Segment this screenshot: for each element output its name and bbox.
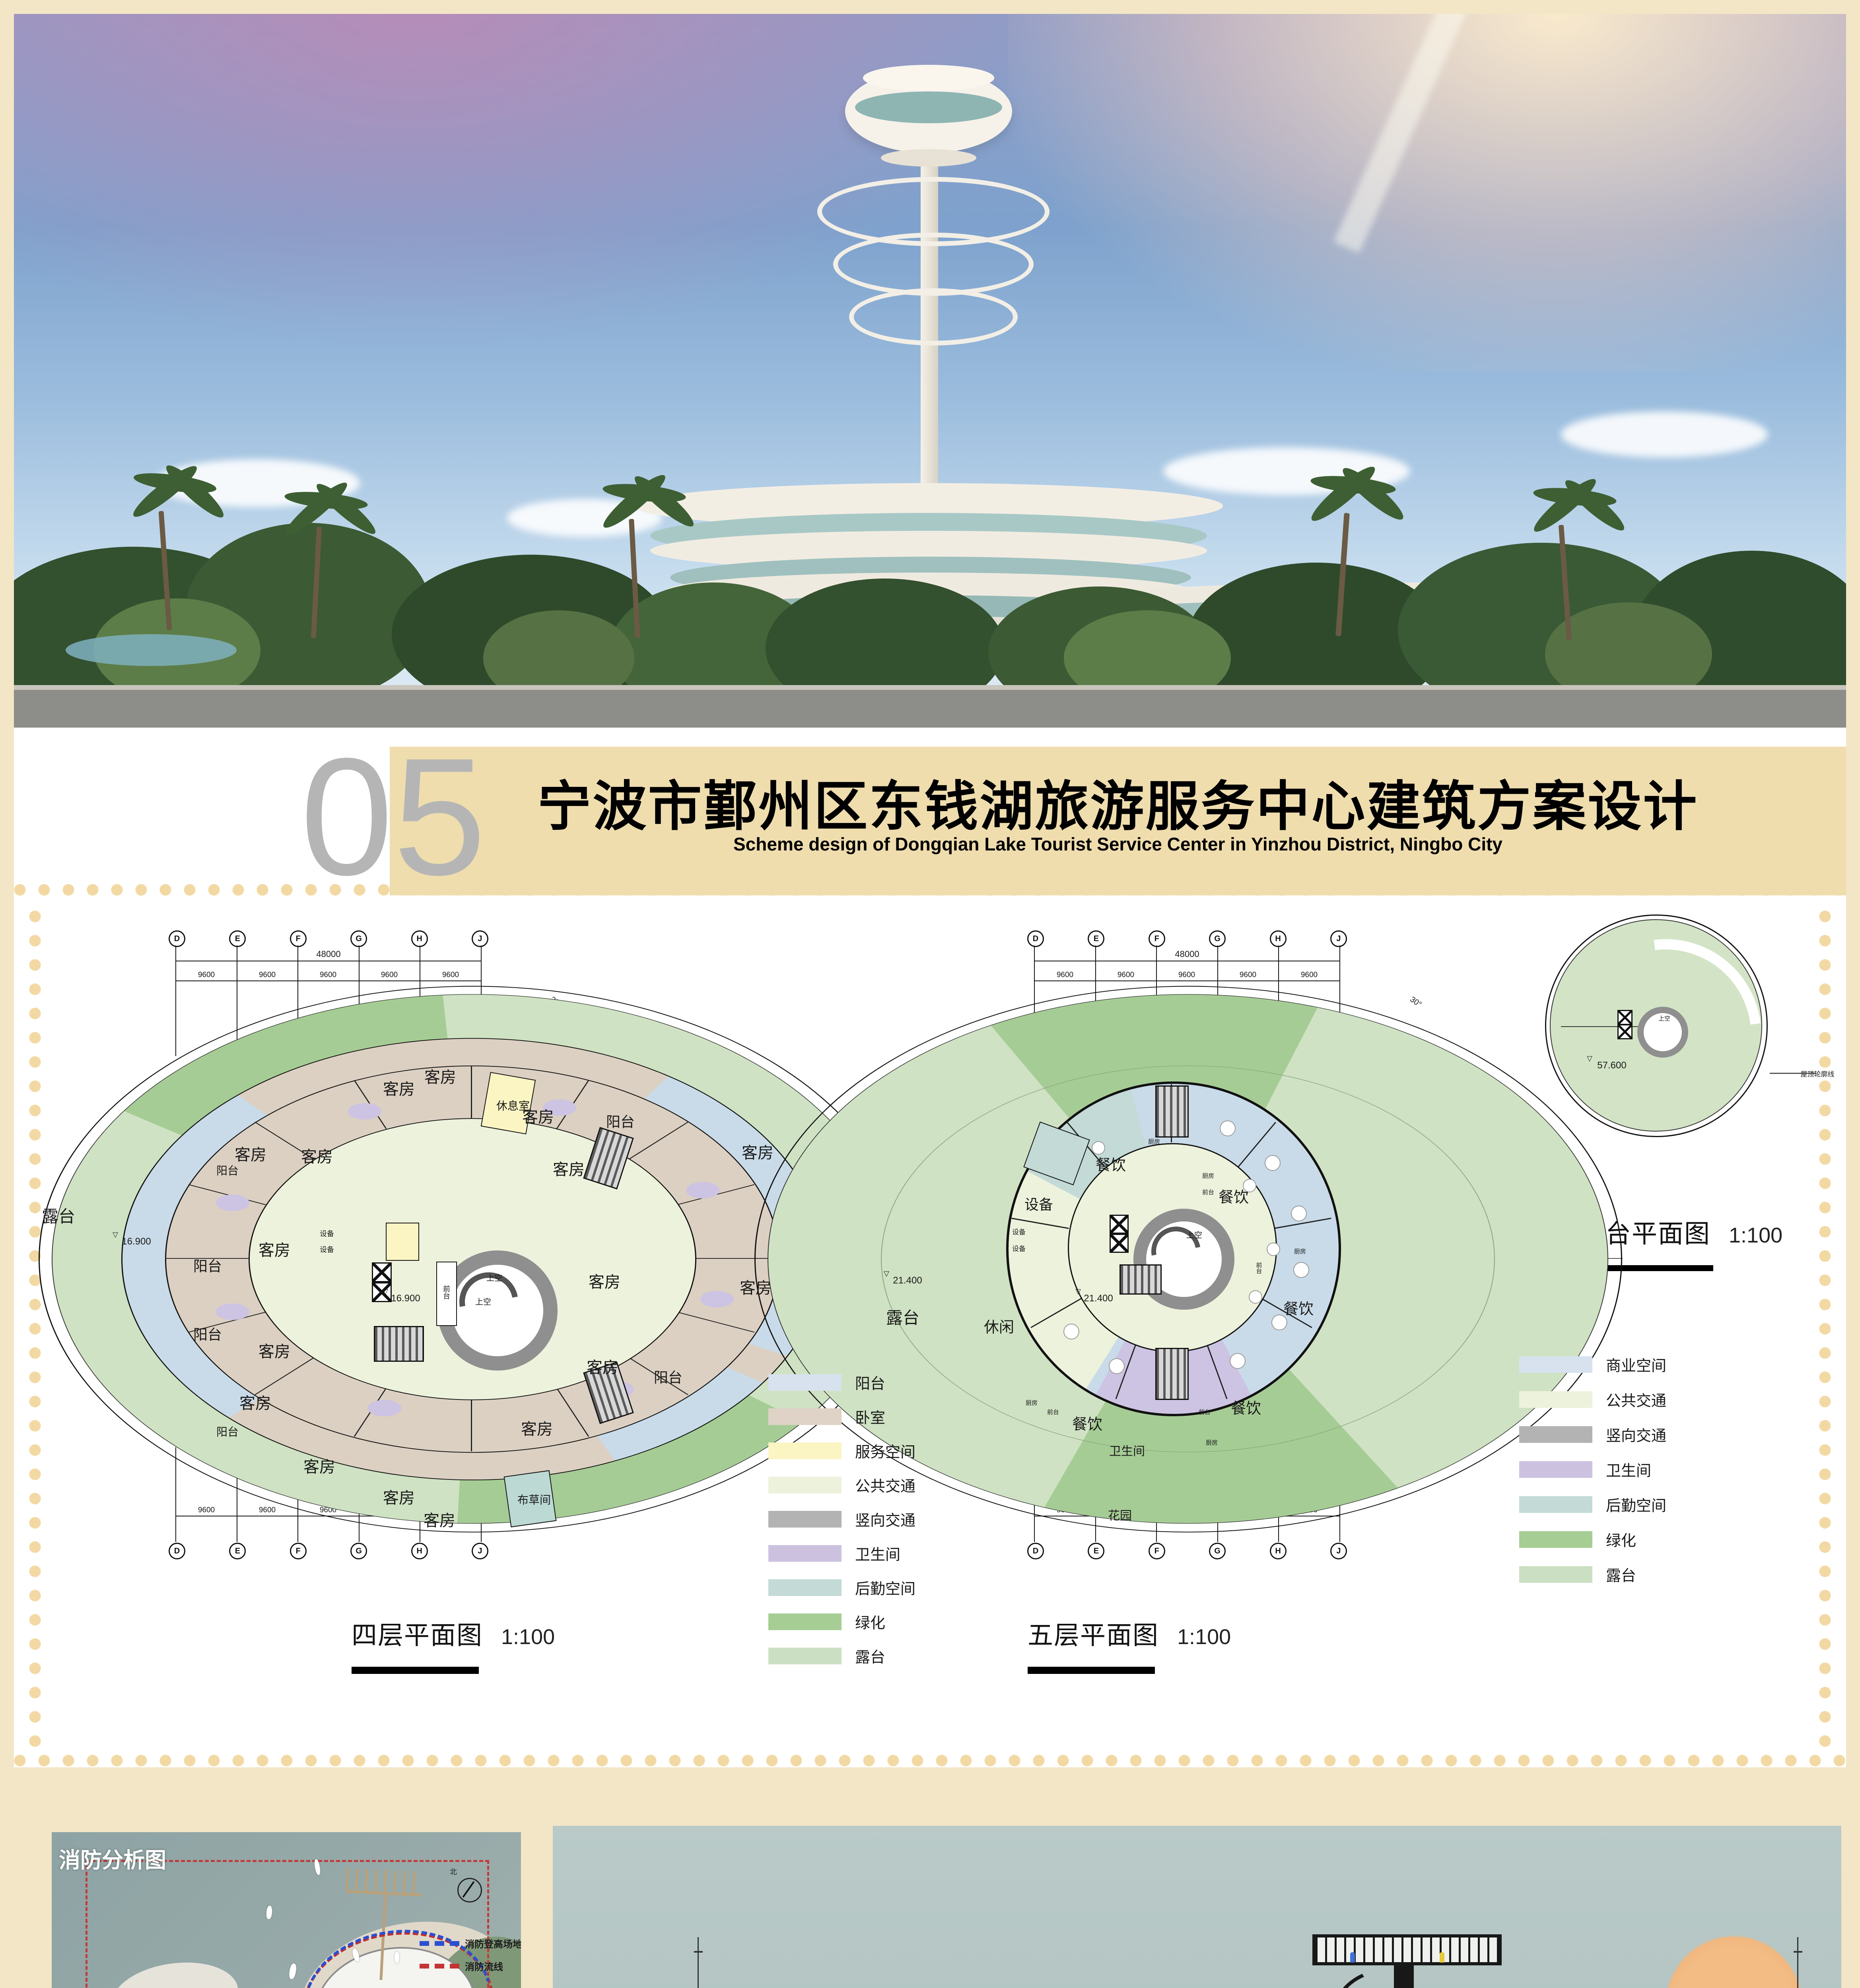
legend-label: 公共交通 <box>1606 1388 1666 1410</box>
label: 21.400 <box>1084 1294 1113 1303</box>
plan5-caption: 五层平面图 1:100 <box>1028 1615 1231 1652</box>
legend-swatch <box>1519 1496 1592 1513</box>
plan4-caption-underline <box>352 1667 479 1674</box>
plan5-caption-scale: 1:100 <box>1177 1625 1231 1649</box>
grid-axis-bubble: G <box>350 1543 367 1559</box>
label: 客房 <box>587 1360 618 1376</box>
grid-axis-bubble: E <box>1088 1543 1104 1559</box>
label: 设备 <box>1012 1229 1026 1236</box>
person <box>1350 1952 1355 1963</box>
label: 露台 <box>886 1310 919 1326</box>
label: 客房 <box>258 1242 290 1258</box>
grid-axis-bubble: H <box>1270 1543 1287 1559</box>
label: ▽ <box>1075 1288 1081 1295</box>
label: 餐饮 <box>1219 1190 1249 1205</box>
legend-item: 绿化 <box>768 1611 915 1633</box>
label: 餐饮 <box>1283 1302 1314 1317</box>
label: 厨房 <box>1148 1139 1160 1145</box>
label: 前台 <box>443 1285 450 1299</box>
label: 客房 <box>235 1147 266 1163</box>
legend-label: 绿化 <box>855 1611 885 1633</box>
label: ▽ <box>113 1231 118 1238</box>
label: 上空 <box>475 1298 491 1306</box>
title-band: 宁波市鄞州区东钱湖旅游服务中心建筑方案设计 Scheme design of D… <box>390 747 1846 895</box>
label: 卫生间 <box>1109 1446 1145 1458</box>
legend-swatch <box>768 1408 842 1425</box>
boat <box>266 1905 273 1919</box>
fire-legend: 消防登高场地消防流线 <box>420 1936 521 1973</box>
deck-plan: ▽57.600上空 <box>1545 914 1768 1137</box>
legend-swatch <box>420 1964 459 1969</box>
legend-label: 公共交通 <box>855 1474 915 1496</box>
analysis-fire: 北 消防登高场地消防流线 消防分析图 <box>52 1832 521 1988</box>
grid-axis-bubble: D <box>1027 1543 1044 1559</box>
legend-item: 后勤空间 <box>1519 1493 1666 1515</box>
grid-axis-bubble: D <box>169 1543 185 1559</box>
label: 上空 <box>1658 1016 1670 1022</box>
legend-label: 卫生间 <box>1606 1458 1651 1480</box>
legend-label: 后勤空间 <box>1606 1493 1666 1515</box>
legend-swatch <box>1519 1461 1592 1478</box>
legend-item: 露台 <box>768 1645 915 1667</box>
grid-axis-bubble: F <box>290 1543 307 1559</box>
deck-caption-scale: 1:100 <box>1729 1223 1782 1248</box>
legend-item: 消防流线 <box>420 1959 521 1973</box>
grid-axis-bubble: E <box>229 1543 246 1559</box>
label: 阳台 <box>606 1115 635 1129</box>
legend-label: 后勤空间 <box>855 1576 915 1598</box>
section-drawing: 1-1剖面图 <box>553 1826 1841 1988</box>
legend-label: 露台 <box>855 1645 885 1667</box>
label: 阳台 <box>193 1259 222 1274</box>
boat <box>352 1948 360 1962</box>
label: 客房 <box>301 1149 333 1165</box>
label: 阳台 <box>193 1328 222 1342</box>
legend-label: 消防登高场地 <box>465 1936 521 1950</box>
label: 客房 <box>258 1344 290 1360</box>
section-people <box>553 1826 1841 1988</box>
plan5-caption-underline <box>1028 1667 1155 1674</box>
page-title: 宁波市鄞州区东钱湖旅游服务中心建筑方案设计 <box>390 763 1846 841</box>
label: 设备 <box>320 1230 334 1237</box>
label: 设备 <box>1012 1246 1026 1252</box>
legend-item: 竖向交通 <box>768 1508 915 1530</box>
label: 餐饮 <box>1072 1417 1102 1432</box>
legend-item: 卧室 <box>768 1406 915 1427</box>
label: ▽ <box>884 1270 889 1277</box>
legend-label: 商业空间 <box>1606 1353 1666 1375</box>
plan4-caption: 四层平面图 1:100 <box>352 1615 555 1652</box>
legend-item: 公共交通 <box>1519 1388 1666 1410</box>
legend-label: 绿化 <box>1606 1528 1636 1550</box>
label: 花园 <box>1108 1510 1132 1522</box>
grid-letters-plan5-bottom: DEFGHJ <box>1027 1543 1347 1559</box>
deck-label-layer: ▽57.600上空 <box>1545 914 1768 1137</box>
legend-item: 服务空间 <box>768 1440 915 1462</box>
label: 客房 <box>553 1162 585 1178</box>
legend-swatch <box>1519 1566 1592 1583</box>
label: 设备 <box>320 1246 334 1253</box>
legend-swatch <box>1519 1356 1592 1373</box>
label: 客房 <box>239 1396 271 1411</box>
label: 厨房 <box>1202 1173 1214 1179</box>
label: 57.600 <box>1597 1061 1626 1070</box>
legend-swatch <box>768 1545 842 1562</box>
label: 上空 <box>1186 1231 1202 1239</box>
foreground-road-surface <box>14 690 1846 728</box>
label: 设备 <box>1024 1198 1053 1212</box>
label: 阳台 <box>216 1165 239 1176</box>
boat <box>288 1963 297 1980</box>
grid-letters-plan4-bottom: DEFGHJ <box>169 1543 488 1559</box>
page-number: 05 <box>300 734 486 901</box>
legend-swatch <box>1519 1426 1592 1443</box>
label: 休息室 <box>496 1101 530 1112</box>
dotted-border-bottom <box>14 1755 1846 1767</box>
legend-item: 消防登高场地 <box>420 1936 521 1950</box>
label: 露台 <box>42 1208 75 1225</box>
label: 布草间 <box>517 1495 551 1506</box>
legend-item: 卫生间 <box>768 1542 915 1564</box>
boat <box>314 1859 321 1875</box>
legend-swatch <box>1519 1391 1592 1408</box>
legend-item: 阳台 <box>768 1371 915 1393</box>
legend-label: 阳台 <box>855 1371 885 1393</box>
plan4-caption-scale: 1:100 <box>501 1625 555 1649</box>
label: 客房 <box>303 1459 335 1475</box>
analysis-fire-title: 消防分析图 <box>59 1842 166 1874</box>
boat <box>395 1951 399 1963</box>
foreground-road <box>14 685 1846 690</box>
hero-rendering <box>14 14 1846 728</box>
legend-swatch <box>1519 1531 1592 1548</box>
label: 餐饮 <box>1096 1158 1126 1173</box>
presentation-board: 宁波市鄞州区东钱湖旅游服务中心建筑方案设计 Scheme design of D… <box>0 0 1860 1988</box>
grid-axis-bubble: J <box>472 1543 488 1559</box>
legend-item: 商业空间 <box>1519 1353 1666 1375</box>
label: 厨房 <box>1206 1440 1218 1446</box>
label: 客房 <box>424 1070 456 1085</box>
label: 前台 <box>1256 1262 1262 1274</box>
label: 前台 <box>1047 1409 1059 1415</box>
plan4-caption-text: 四层平面图 <box>352 1615 483 1652</box>
label: 16.900 <box>122 1237 151 1246</box>
dotted-border-right <box>1819 911 1831 1749</box>
legend-label: 竖向交通 <box>855 1508 915 1530</box>
legend-item: 后勤空间 <box>768 1576 915 1598</box>
label: 客房 <box>383 1490 415 1506</box>
legend-swatch <box>768 1477 842 1493</box>
legend-swatch <box>420 1941 459 1946</box>
legend-item: 卫生间 <box>1519 1458 1666 1480</box>
legend-label: 卫生间 <box>855 1542 900 1564</box>
legend-swatch <box>768 1442 842 1459</box>
legend-swatch <box>768 1648 842 1664</box>
label: 厨房 <box>1294 1249 1306 1255</box>
label: 客房 <box>521 1421 553 1437</box>
label: 上空 <box>486 1274 502 1282</box>
label: ▽ <box>383 1288 388 1295</box>
legend-plan5: 商业空间公共交通竖向交通卫生间后勤空间绿化露台 <box>1519 1353 1666 1585</box>
grid-axis-bubble: F <box>1149 1543 1165 1559</box>
label: 客房 <box>589 1274 620 1290</box>
label: 21.400 <box>893 1276 922 1285</box>
grid-axis-bubble: H <box>411 1543 428 1559</box>
label: 阳台 <box>654 1371 682 1385</box>
plan5-caption-text: 五层平面图 <box>1028 1615 1159 1652</box>
label: 前台 <box>1199 1409 1211 1415</box>
label: 餐饮 <box>1231 1401 1261 1416</box>
label: 厨房 <box>1026 1400 1038 1406</box>
pool <box>66 634 237 666</box>
legend-swatch <box>768 1613 842 1630</box>
legend-item: 竖向交通 <box>1519 1423 1666 1445</box>
tree-band <box>14 14 1846 728</box>
legend-item: 公共交通 <box>768 1474 915 1496</box>
label: 休闲 <box>984 1320 1014 1335</box>
person <box>1440 1952 1444 1963</box>
legend-item: 露台 <box>1519 1563 1666 1585</box>
deck-note-line <box>1770 1073 1815 1074</box>
label: 客房 <box>383 1081 415 1097</box>
label: 16.900 <box>391 1294 420 1303</box>
grid-axis-bubble: J <box>1330 1543 1347 1559</box>
label: 前台 <box>1202 1190 1214 1196</box>
label: 阳台 <box>216 1427 239 1438</box>
legend-item: 绿化 <box>1519 1528 1666 1550</box>
legend-swatch <box>768 1374 842 1391</box>
legend-swatch <box>768 1579 842 1596</box>
grid-axis-bubble: G <box>1209 1543 1226 1559</box>
legend-label: 竖向交通 <box>1606 1423 1666 1445</box>
label: 客房 <box>424 1513 455 1529</box>
legend-plan4: 阳台卧室服务空间公共交通竖向交通卫生间后勤空间绿化露台 <box>768 1371 915 1667</box>
legend-swatch <box>768 1511 842 1528</box>
legend-label: 服务空间 <box>855 1440 915 1462</box>
page-subtitle: Scheme design of Dongqian Lake Tourist S… <box>390 833 1846 855</box>
legend-label: 露台 <box>1606 1563 1636 1585</box>
legend-label: 卧室 <box>855 1406 885 1427</box>
label: ▽ <box>1587 1055 1592 1062</box>
legend-label: 消防流线 <box>465 1959 503 1973</box>
